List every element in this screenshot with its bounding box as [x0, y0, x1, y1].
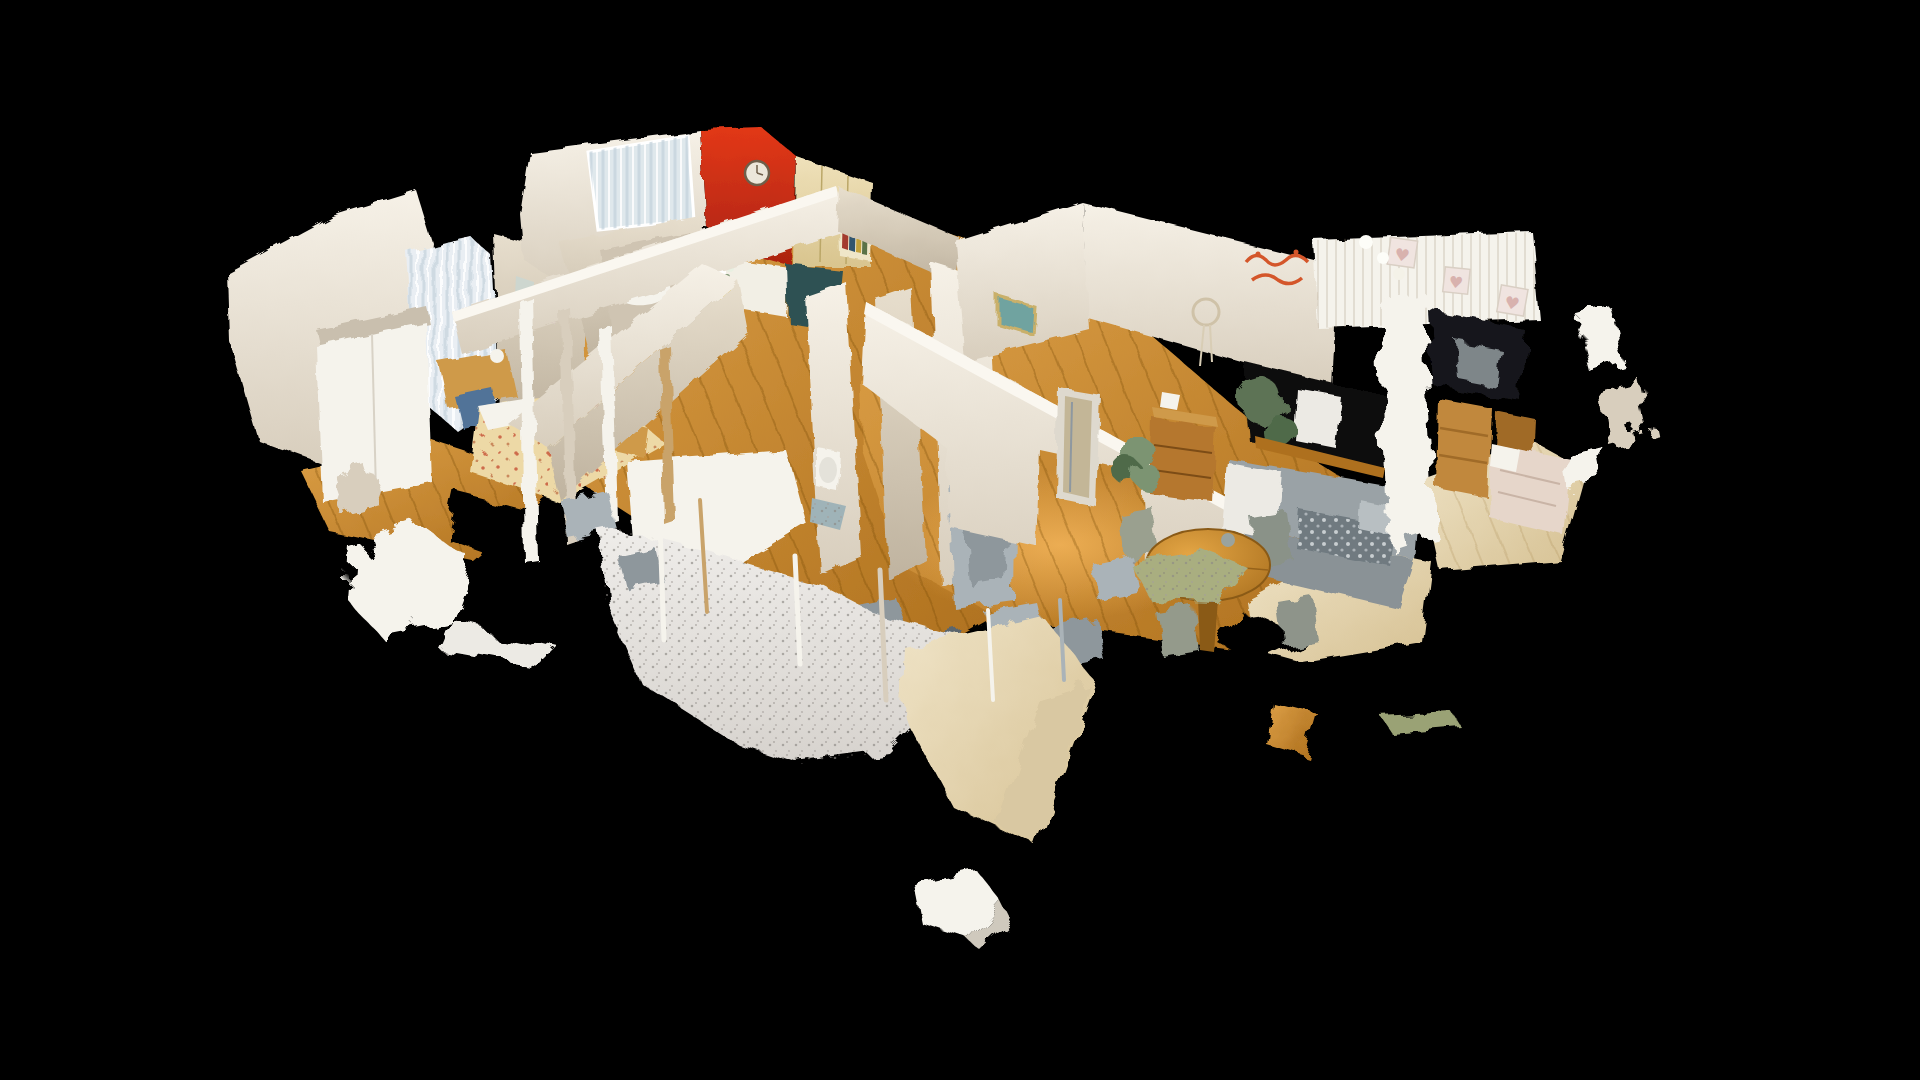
heart-frame: ♥: [1497, 285, 1528, 316]
dining-chair: [1278, 596, 1318, 646]
piano-cloth: [1295, 390, 1342, 448]
heart-frame: ♥: [1387, 237, 1417, 267]
svg-text:♥: ♥: [1393, 244, 1411, 266]
mirror-door-glass: [1063, 396, 1092, 498]
dining-chair: [1156, 606, 1198, 656]
svg-text:♥: ♥: [1448, 272, 1464, 292]
toilet-seat: [819, 457, 837, 483]
table-lamp: [1160, 392, 1180, 410]
track-light: [1377, 252, 1389, 264]
dollhouse-model-svg[interactable]: ♥ ♥ ♥: [0, 0, 1920, 1080]
fern-plant: [1135, 465, 1161, 491]
table-centerpiece: [1221, 533, 1235, 547]
track-light: [1359, 235, 1373, 249]
track-light: [1393, 268, 1405, 280]
pine-dresser: [1436, 398, 1492, 498]
heart-frame: ♥: [1443, 267, 1470, 294]
flamingo-wall-art-dot: [1294, 250, 1299, 255]
scan-shard: [1090, 552, 1136, 600]
dollhouse-viewport[interactable]: ♥ ♥ ♥: [0, 0, 1920, 1080]
wooden-dresser: [1150, 417, 1216, 502]
kitchen-window-curtain: [588, 136, 694, 230]
desk-lamp: [490, 349, 504, 363]
flamingo-wall-art-dot: [1256, 252, 1261, 257]
